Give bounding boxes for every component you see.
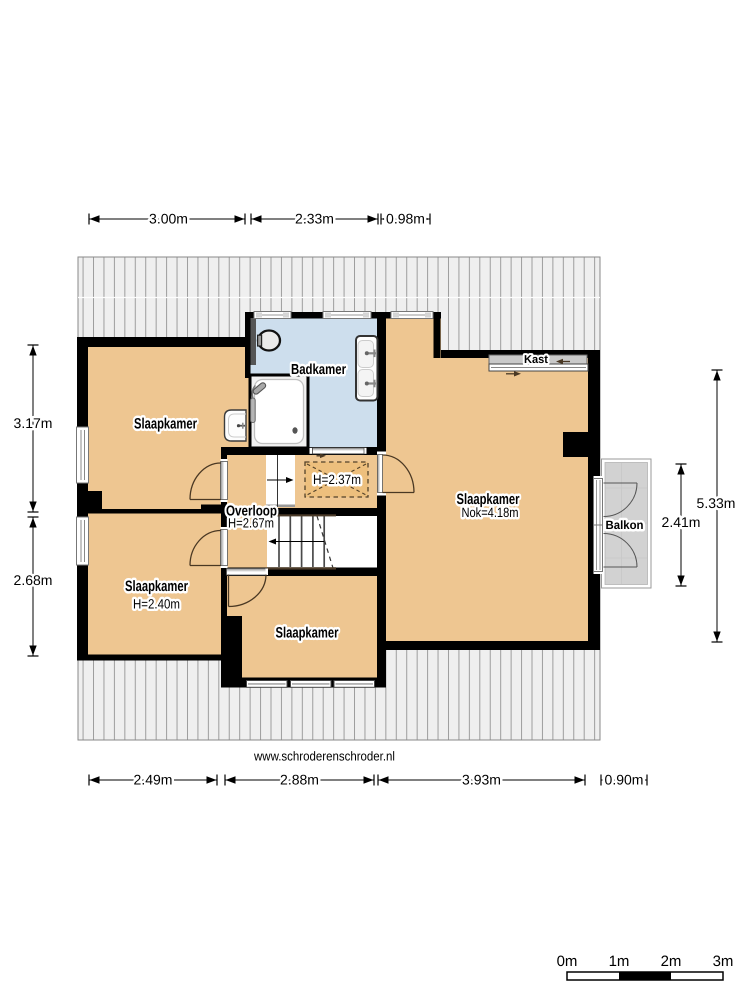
svg-text:3.93m: 3.93m — [462, 772, 501, 788]
svg-text:2.49m: 2.49m — [134, 772, 173, 788]
svg-text:1m: 1m — [609, 953, 630, 970]
svg-text:Balkon: Balkon — [606, 518, 644, 532]
svg-text:0.90m: 0.90m — [605, 772, 644, 788]
svg-text:2.88m: 2.88m — [280, 772, 319, 788]
svg-text:Slaapkamer: Slaapkamer — [125, 578, 188, 595]
svg-text:H=2.40m: H=2.40m — [133, 597, 180, 612]
svg-text:Slaapkamer: Slaapkamer — [134, 416, 197, 433]
svg-text:2.33m: 2.33m — [295, 211, 334, 227]
svg-text:H=2.37m: H=2.37m — [313, 472, 361, 487]
svg-text:3.17m: 3.17m — [14, 415, 53, 431]
svg-text:5.33m: 5.33m — [697, 495, 736, 511]
svg-text:H=2.67m: H=2.67m — [228, 516, 274, 531]
svg-text:Slaapkamer: Slaapkamer — [276, 625, 339, 642]
svg-text:3m: 3m — [713, 953, 734, 970]
svg-text:0m: 0m — [557, 953, 578, 970]
svg-text:www.schroderenschroder.nl: www.schroderenschroder.nl — [253, 749, 395, 764]
svg-text:2m: 2m — [661, 953, 682, 970]
svg-text:0.98m: 0.98m — [386, 211, 425, 227]
svg-text:Nok=4.18m: Nok=4.18m — [462, 505, 519, 520]
svg-text:Kast: Kast — [524, 354, 548, 366]
svg-text:3.00m: 3.00m — [149, 211, 188, 227]
svg-text:2.68m: 2.68m — [14, 572, 53, 588]
svg-text:2.41m: 2.41m — [662, 514, 701, 530]
svg-text:Badkamer: Badkamer — [291, 362, 346, 378]
